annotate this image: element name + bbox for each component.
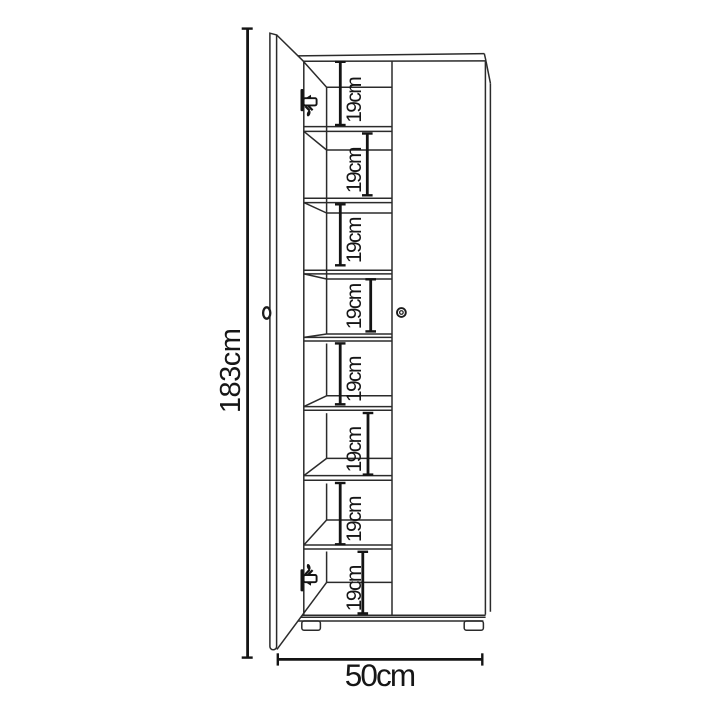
svg-text:19cm: 19cm [343, 426, 366, 472]
svg-text:19cm: 19cm [343, 283, 366, 329]
svg-text:19cm: 19cm [343, 356, 366, 402]
svg-text:50cm: 50cm [345, 657, 415, 693]
svg-text:183cm: 183cm [215, 329, 247, 414]
svg-text:19cm: 19cm [343, 77, 366, 123]
svg-text:19cm: 19cm [343, 565, 366, 611]
svg-text:19cm: 19cm [343, 217, 366, 263]
svg-text:19cm: 19cm [343, 147, 366, 193]
svg-text:19cm: 19cm [343, 496, 366, 542]
